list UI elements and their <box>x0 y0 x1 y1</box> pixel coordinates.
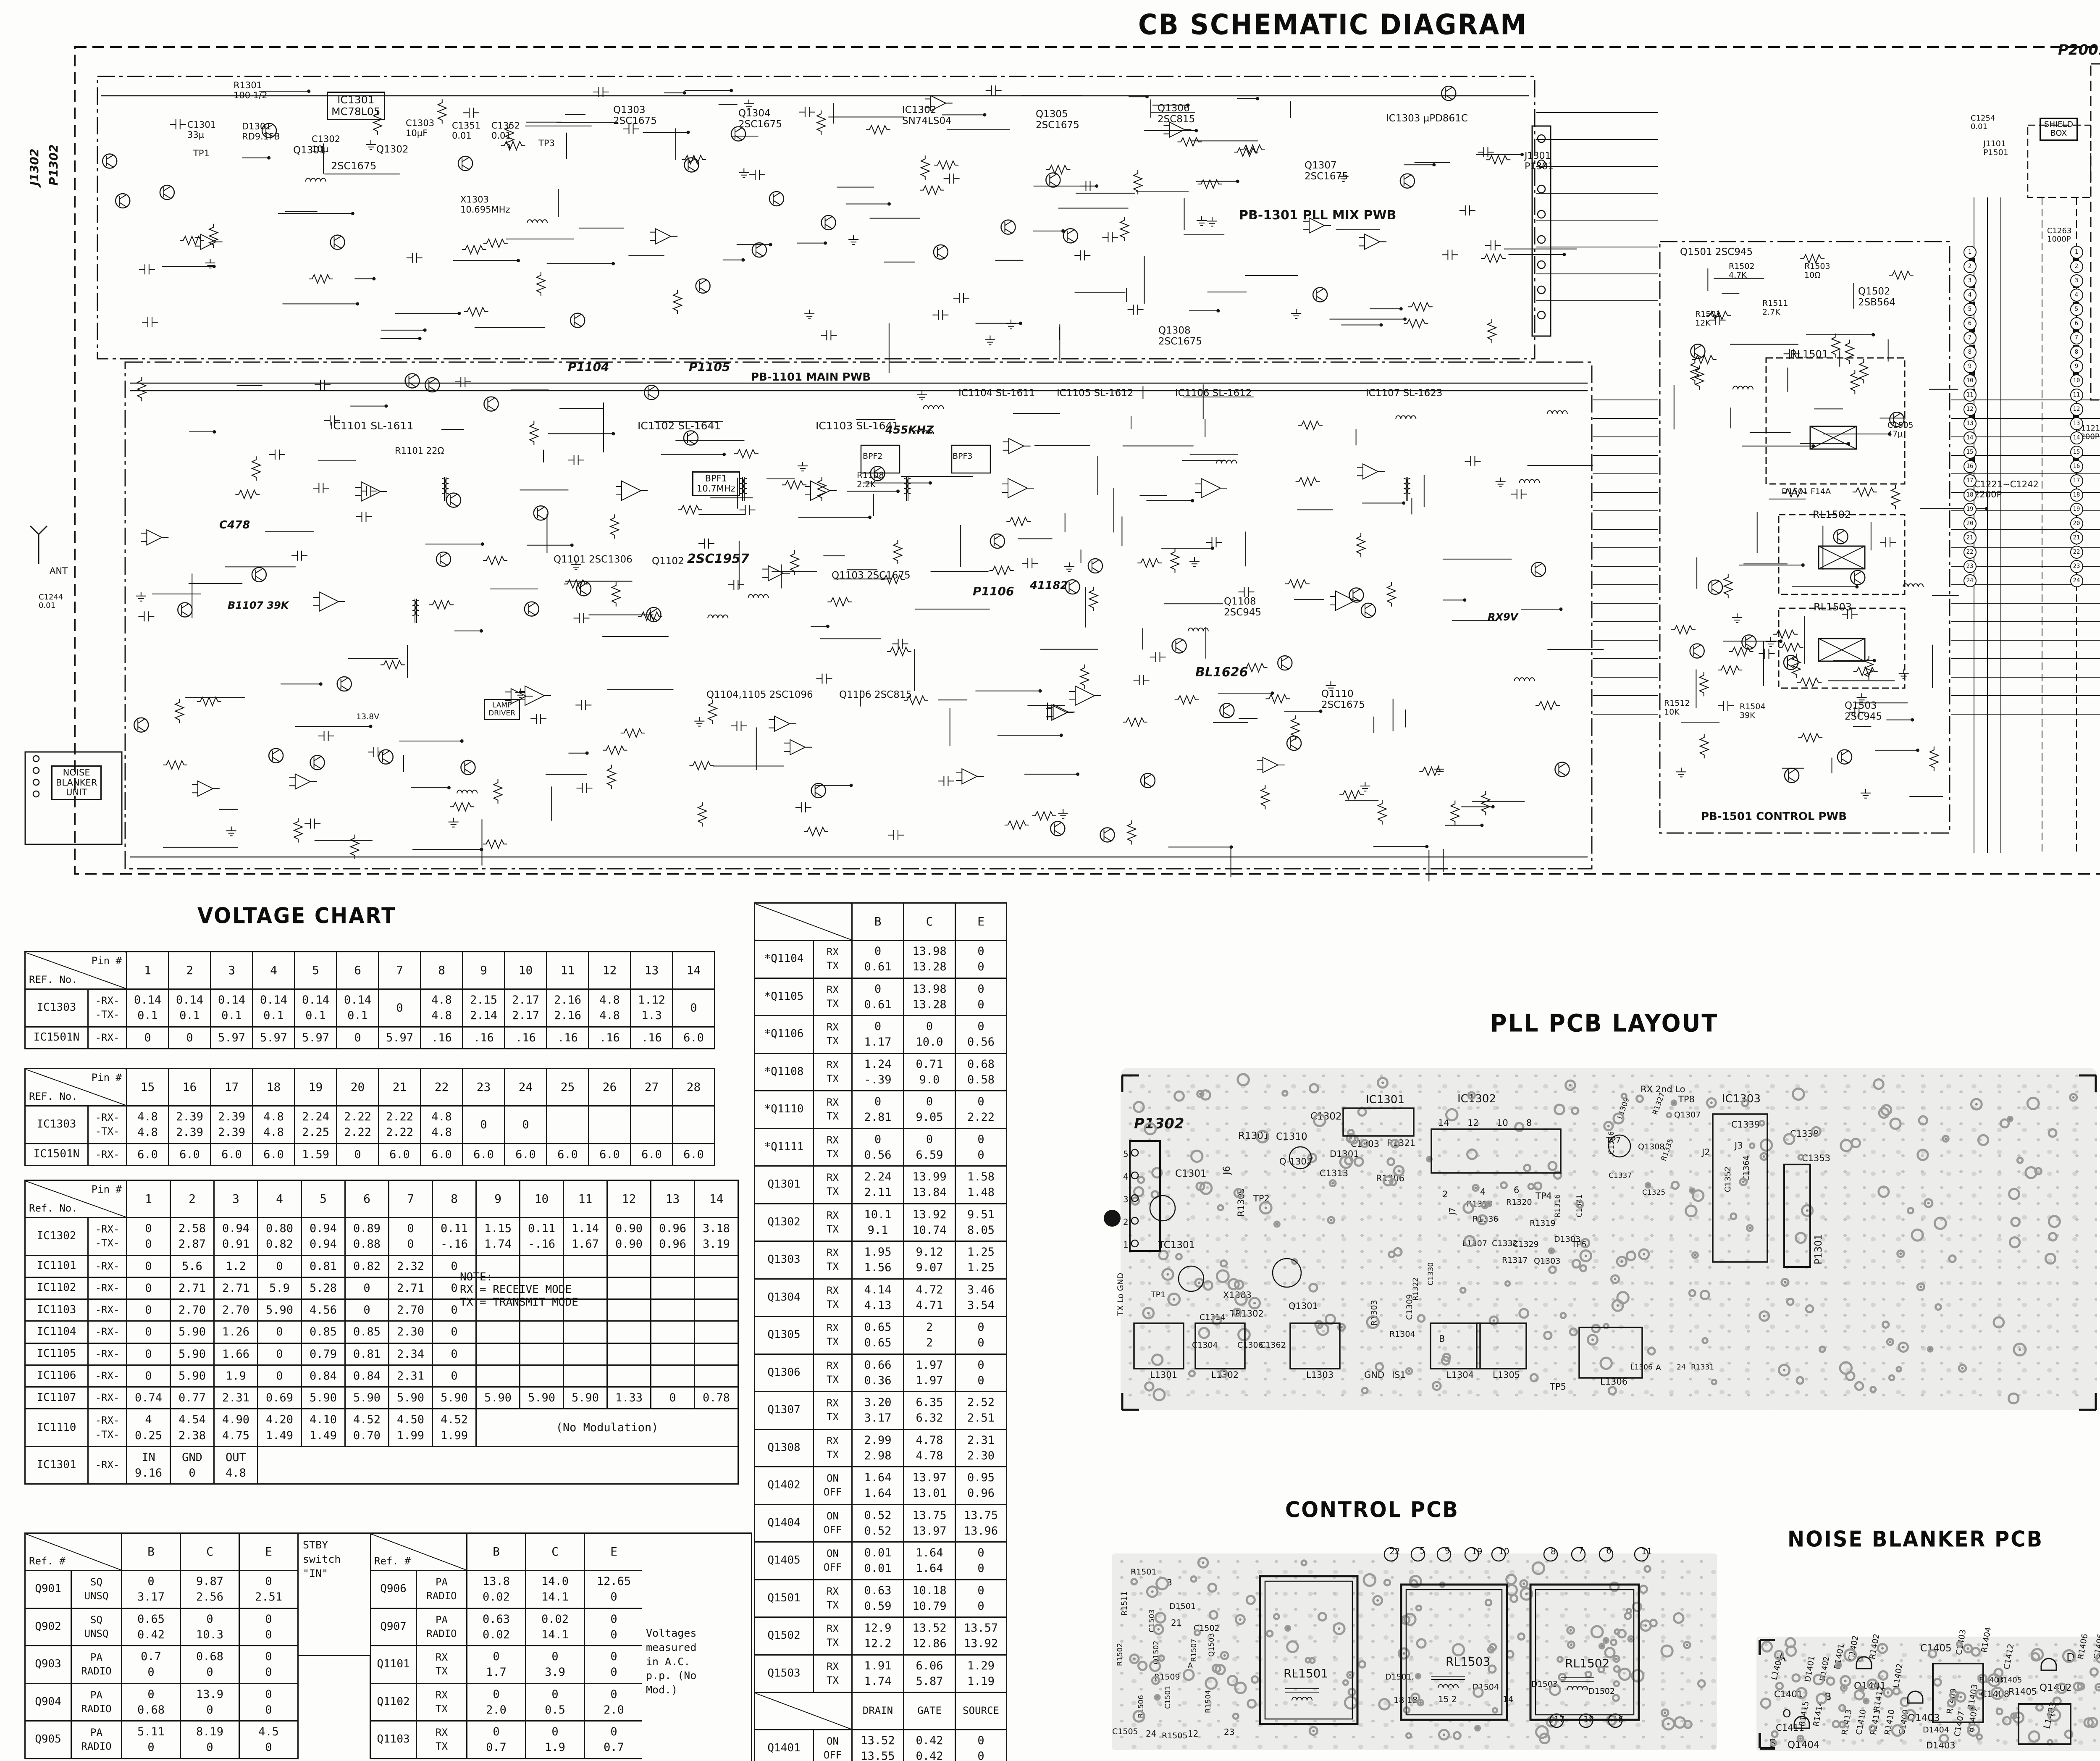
table-cell <box>695 1255 738 1277</box>
table-cell: 0.14 0.1 <box>337 989 379 1027</box>
table-cell <box>589 1106 631 1144</box>
shield-right-pins: 3 <box>2070 274 2083 287</box>
table-cell: 12.65 0 <box>585 1571 643 1609</box>
table-cell: 0 1.17 <box>852 1016 904 1054</box>
label-2: 2 <box>1442 1190 1448 1200</box>
shield-left-pins: 15 <box>1963 446 1977 459</box>
shield-right-pins: 14 <box>2070 431 2083 444</box>
table-cell: 0.77 <box>171 1387 214 1409</box>
table-cell: 13.9 0 <box>181 1683 239 1721</box>
shield-left-pins: 12 <box>1963 403 1977 416</box>
label-23: 23 <box>1224 1727 1234 1737</box>
table-cell: 5.90 <box>564 1387 607 1409</box>
label-c1301: C1301 33µ <box>187 120 216 140</box>
pll-pcb-title: PLL PCB LAYOUT <box>1490 1009 1718 1037</box>
table-cell: 2.30 <box>389 1321 433 1343</box>
table-cell: 9.12 9.07 <box>904 1241 955 1279</box>
table-cell: PA RADIO <box>417 1571 467 1609</box>
table-cell: IC1303 <box>25 989 88 1027</box>
shield-left-pins: 3 <box>1963 274 1977 287</box>
label-r1318: R1318 <box>1467 1200 1493 1209</box>
label-ic1101: IC1101 SL-1611 <box>330 420 413 432</box>
stby-switch-note: STBY switch "IN" <box>297 1532 371 1656</box>
table-cell: C <box>904 903 955 941</box>
label-d1503: D1503 <box>1531 1680 1558 1689</box>
table-cell: 5.97 <box>295 1027 337 1049</box>
table-cell: 0 0.7 <box>467 1721 526 1759</box>
table-cell: GND 0 <box>171 1446 214 1484</box>
label-12: 12 <box>1467 1118 1479 1128</box>
table-cell: 7 <box>379 952 421 989</box>
table-cell: 0 <box>127 1277 171 1299</box>
label-q1403: Q1403 <box>1908 1713 1940 1724</box>
label-12: 12 <box>1188 1729 1198 1738</box>
label-r1316: R1316 <box>1554 1194 1562 1217</box>
table-cell <box>607 1343 651 1365</box>
label-q1303: Q1303 2SC1675 <box>613 105 657 127</box>
table-cell: RX TX <box>814 1016 852 1054</box>
table-cell <box>564 1343 607 1365</box>
table-cell: Q903 <box>25 1646 71 1684</box>
table-cell: 14 <box>673 952 715 989</box>
label-x1303: X1303 10.695MHz <box>460 195 510 215</box>
table-cell: 20 <box>337 1069 379 1106</box>
table-cell: 0 <box>258 1255 302 1277</box>
label-c1351: C1351 0.01 <box>452 121 480 141</box>
table-cell: 0 0 <box>239 1646 298 1684</box>
table-cell: 0.94 0.94 <box>302 1218 345 1256</box>
table-cell: 0 <box>673 989 715 1027</box>
table-cell: RX TX <box>814 941 852 978</box>
label-pb-1501: PB-1501 CONTROL PWB <box>1701 811 1847 823</box>
label-c1341: C1341 <box>1576 1194 1584 1217</box>
table-cell: ON OFF <box>814 1467 852 1505</box>
table-cell: 13.52 12.86 <box>904 1617 955 1655</box>
shield-left-pins: 10 <box>1963 374 1977 387</box>
label-j2: J2 <box>1702 1148 1710 1158</box>
table-cell: 4.5 0 <box>239 1721 298 1759</box>
table-cell: 0 9.05 <box>904 1091 955 1129</box>
label-d1301: D1301 <box>1330 1149 1359 1159</box>
shield-left-pins: 24 <box>1963 574 1977 587</box>
label-l1307: L1307 <box>1462 1239 1487 1248</box>
table-cell: 0.84 <box>302 1365 345 1387</box>
shield-left-pins: 17 <box>1963 474 1977 487</box>
table-cell: 13.97 13.01 <box>904 1467 955 1505</box>
label-22: 22 <box>1389 1547 1400 1556</box>
table-cell: 5.90 <box>345 1387 389 1409</box>
label-rl1501: RL1501 <box>1284 1667 1328 1680</box>
table-cell: 0.79 <box>302 1343 345 1365</box>
table-cell: 2.52 2.51 <box>955 1392 1007 1430</box>
table-cell: RX TX <box>814 1279 852 1317</box>
label-d1504: D1504 <box>1473 1683 1499 1692</box>
table-cell: 0 <box>345 1299 389 1321</box>
label-p1106: P1106 <box>973 585 1014 598</box>
table-cell: Q1102 <box>370 1683 417 1721</box>
table-cell: 4.14 4.13 <box>852 1279 904 1317</box>
label-q1303: Q1303 <box>1534 1257 1560 1266</box>
label-r1320: R1320 <box>1506 1198 1532 1207</box>
table-cell: IN 9.16 <box>127 1446 171 1484</box>
table-cell: 0.85 <box>345 1321 389 1343</box>
table-cell: Pin #REF. No. <box>25 952 127 989</box>
label-rx9v: RX9V <box>1488 612 1518 623</box>
table-cell: 2.32 <box>389 1255 433 1277</box>
table-cell: 2 2 <box>904 1317 955 1354</box>
table-cell <box>520 1343 564 1365</box>
table-cell: 2.39 2.39 <box>169 1106 211 1144</box>
label-ic1301: IC1301 <box>1366 1094 1404 1106</box>
label-14: 14 <box>1438 1118 1449 1128</box>
table-cell: 2.24 2.25 <box>295 1106 337 1144</box>
table-cell <box>564 1321 607 1343</box>
table-cell: 5.11 0 <box>122 1721 181 1759</box>
label-c1306: C1306 <box>1237 1341 1263 1350</box>
voltage-table-q-bce: BCE*Q1104RX TX0 0.6113.98 13.280 0*Q1105… <box>754 902 1007 1761</box>
label-q1503: Q1503 2SC945 <box>1845 701 1882 723</box>
table-cell: 4.8 4.8 <box>253 1106 295 1144</box>
label-rl1501: RL1501 <box>1790 349 1828 360</box>
shield-right-pins: 16 <box>2070 460 2083 473</box>
label-c1338: C1338 <box>1790 1129 1819 1139</box>
table-cell: Q1101 <box>370 1646 417 1684</box>
table-cell: RX TX <box>814 1580 852 1617</box>
label-l1305: L1305 <box>1493 1370 1520 1380</box>
label-p1302: P1302 <box>47 145 60 186</box>
label-p1104: P1104 <box>568 360 609 373</box>
label-p1302: P1302 <box>1134 1116 1184 1132</box>
table-cell: 6.0 <box>211 1143 253 1165</box>
table-cell: 0 <box>127 1027 169 1049</box>
label-q1301: Q1301 <box>1289 1301 1318 1312</box>
label-3: 3 <box>1167 1578 1172 1587</box>
shield-left-pins: 7 <box>1963 331 1977 344</box>
table-cell: 0 <box>433 1365 476 1387</box>
label-l1301: L1301 <box>1150 1370 1177 1380</box>
table-cell: 2.31 2.30 <box>955 1429 1007 1467</box>
table-cell: IC1107 <box>25 1387 88 1409</box>
table-cell: 0 0 <box>127 1218 171 1256</box>
label-l1302: L1302 <box>1211 1370 1239 1380</box>
label-tp1: TP1 <box>193 149 210 159</box>
table-cell: 1.14 1.67 <box>564 1218 607 1256</box>
label-c1362: C1362 <box>1260 1341 1286 1350</box>
table-cell: 4 <box>253 952 295 989</box>
table-cell: 0.11 -.16 <box>520 1218 564 1256</box>
table-cell: 0 0.5 <box>526 1683 585 1721</box>
table-cell: IC1102 <box>25 1277 88 1299</box>
table-cell: IC1101 <box>25 1255 88 1277</box>
table-cell: 6.0 <box>673 1027 715 1049</box>
table-cell: -RX- -TX- <box>88 1106 127 1144</box>
table-cell: 0 <box>433 1343 476 1365</box>
table-cell: 0.14 0.1 <box>127 989 169 1027</box>
table-cell: 0 <box>258 1365 302 1387</box>
table-cell: -RX- <box>88 1143 127 1165</box>
table-cell: 4.54 2.38 <box>171 1409 214 1447</box>
table-cell: RX TX <box>814 1128 852 1166</box>
shield-right-pins: 1 <box>2070 246 2083 259</box>
table-cell: 15 <box>127 1069 169 1106</box>
table-cell: 9 <box>476 1180 520 1218</box>
table-cell: 4 <box>258 1180 302 1218</box>
label-q1307: Q1307 2SC1675 <box>1305 160 1348 182</box>
label-r1303: R1303 <box>1370 1300 1379 1326</box>
label-ic1301: IC1301 MC78L05 <box>327 92 385 120</box>
table-cell: DRAIN <box>852 1693 904 1730</box>
shield-right-pins: 4 <box>2070 289 2083 302</box>
shield-right-pins: 17 <box>2070 474 2083 487</box>
table-cell: 0 0 <box>389 1218 433 1256</box>
label-q1302: Q1302 <box>376 145 409 155</box>
table-cell: -RX- <box>88 1277 127 1299</box>
table-cell <box>476 1343 520 1365</box>
label-q1502: Q1502 2SB564 <box>1858 286 1895 308</box>
table-cell: 2 <box>169 952 211 989</box>
table-cell: Q902 <box>25 1608 71 1646</box>
label-24: 24 <box>1146 1729 1156 1738</box>
table-cell: Q1402 <box>755 1467 814 1505</box>
table-cell: 0 0 <box>239 1683 298 1721</box>
label-r1511: R1511 <box>1121 1591 1129 1616</box>
label-l1306: L1306 <box>1630 1364 1653 1372</box>
table-cell: C <box>181 1533 239 1571</box>
table-cell: 5.90 <box>171 1365 214 1387</box>
table-cell: 0 <box>127 1255 171 1277</box>
label-b: B <box>1439 1334 1445 1344</box>
table-cell: 0.02 14.1 <box>526 1608 585 1646</box>
label-a: A <box>1656 1364 1661 1372</box>
shield-right-pins: 23 <box>2070 560 2083 573</box>
table-cell: 12.9 12.2 <box>852 1617 904 1655</box>
label-6: 6 <box>1514 1185 1519 1196</box>
table-cell: RX TX <box>417 1683 467 1721</box>
label-d1501,: D1501, <box>1385 1673 1414 1682</box>
label-j1301: J1301 P1301 <box>1525 151 1554 172</box>
label-r1501: R1501 12K <box>1695 310 1721 328</box>
label-q1501: Q1501 2SC945 <box>1680 247 1753 258</box>
table-cell: 13.99 13.84 <box>904 1166 955 1204</box>
label-10: 10 <box>1499 1547 1509 1556</box>
table-cell: -RX- <box>88 1343 127 1365</box>
label-ic1105: IC1105 SL-1612 <box>1057 388 1134 399</box>
table-cell: 5.28 <box>302 1277 345 1299</box>
table-cell: 6.0 <box>547 1143 589 1165</box>
shield-left-pins: 8 <box>1963 346 1977 359</box>
table-cell: *Q1111 <box>755 1128 814 1166</box>
table-cell: 13.98 13.28 <box>904 978 955 1016</box>
shield-right-pins: 13 <box>2070 417 2083 430</box>
label-q1307: Q1307 <box>1674 1111 1701 1120</box>
shield-right-pins: 9 <box>2070 360 2083 373</box>
shield-right-pins: 8 <box>2070 346 2083 359</box>
table-cell: 13.57 13.92 <box>955 1617 1007 1655</box>
table-cell: 8 <box>433 1180 476 1218</box>
table-cell: 5.90 <box>389 1387 433 1409</box>
table-cell: Q1501 <box>755 1580 814 1617</box>
table-cell: 13.75 13.97 <box>904 1504 955 1542</box>
table-cell: Q1305 <box>755 1317 814 1354</box>
table-cell: 17 <box>211 1069 253 1106</box>
label-ant: ANT <box>50 566 68 576</box>
table-cell: PA RADIO <box>71 1721 122 1759</box>
table-cell: 0 0 <box>955 941 1007 978</box>
label-c1221~c1242: C1221~C1242 2200P <box>1974 480 2039 499</box>
table-cell: 0 2.0 <box>467 1683 526 1721</box>
label-tp8: TP8 <box>1678 1095 1695 1105</box>
table-cell: 0.84 <box>345 1365 389 1387</box>
label-r1321: R1321 <box>1387 1138 1415 1149</box>
table-cell: .16 <box>421 1027 463 1049</box>
label-q-1302: Q-1302 <box>1279 1157 1312 1167</box>
table-cell: 0 0 <box>585 1646 643 1684</box>
table-cell: .16 <box>631 1027 673 1049</box>
shield-right-pins: 18 <box>2070 489 2083 502</box>
label-tx: TX Lo GND <box>1116 1273 1125 1316</box>
shield-left-pins: 2 <box>1963 260 1977 273</box>
voltage-table-ic-main: Pin #Ref. No.1234567891011121314IC1302-R… <box>24 1180 739 1485</box>
label-d1501: D1501 <box>1169 1602 1196 1611</box>
table-cell: 4.52 1.99 <box>433 1409 476 1447</box>
label-r1336: R1336 <box>1473 1215 1499 1224</box>
table-cell: 9 <box>463 952 505 989</box>
table-cell: -RX- <box>88 1446 127 1484</box>
table-cell: 0 0.61 <box>852 941 904 978</box>
table-cell: 4.90 4.75 <box>214 1409 258 1447</box>
table-cell: 2.71 <box>214 1277 258 1299</box>
table-cell: 0 2.22 <box>955 1091 1007 1129</box>
label-tp1: TP1 <box>1151 1291 1165 1299</box>
table-cell: RX TX <box>814 1091 852 1129</box>
table-cell: 0.81 <box>302 1255 345 1277</box>
shield-right-pins: 22 <box>2070 546 2083 559</box>
table-cell: 0 0.56 <box>852 1128 904 1166</box>
voltage-table-pins-1-14: Pin #REF. No.1234567891011121314IC1303-R… <box>24 951 715 1049</box>
table-cell: 1.59 <box>295 1143 337 1165</box>
table-cell <box>755 1693 852 1730</box>
table-cell: 4.50 1.99 <box>389 1409 433 1447</box>
table-cell <box>520 1321 564 1343</box>
table-cell: Q1503 <box>755 1655 814 1693</box>
label-c1303: C1303 <box>1351 1139 1379 1149</box>
table-cell: 2.22 2.22 <box>337 1106 379 1144</box>
table-cell: -RX- <box>88 1365 127 1387</box>
table-cell: 6.0 <box>379 1143 421 1165</box>
table-cell: 2.22 2.22 <box>379 1106 421 1144</box>
table-cell: 0.66 0.36 <box>852 1354 904 1392</box>
label-2sc1675: 2SC1675 <box>331 160 376 172</box>
label-ic1303: IC1303 <box>1722 1093 1761 1105</box>
table-cell: 0.81 <box>345 1343 389 1365</box>
label-c1339: C1339 <box>1731 1120 1760 1130</box>
table-cell: 3 <box>214 1180 258 1218</box>
label-c1301: C1301 <box>1175 1169 1207 1180</box>
table-cell <box>651 1277 695 1299</box>
label-noise: NOISE BLANKER UNIT <box>51 765 102 800</box>
shield-left-pins: 6 <box>1963 317 1977 330</box>
table-cell <box>695 1321 738 1343</box>
label-tp2: TP2 <box>1253 1194 1270 1204</box>
label-r1504: R1504 <box>1205 1690 1213 1713</box>
label-q1108: Q1108 2SC945 <box>1224 597 1261 618</box>
table-cell: 5.6 <box>171 1255 214 1277</box>
shield-right-pins: 11 <box>2070 389 2083 402</box>
table-cell: 1.95 1.56 <box>852 1241 904 1279</box>
table-cell: 4.78 4.78 <box>904 1429 955 1467</box>
table-cell: 6.0 <box>463 1143 505 1165</box>
table-cell: 10 <box>520 1180 564 1218</box>
shield-left-pins: 1 <box>1963 246 1977 259</box>
label-r1502: R1502 <box>1116 1643 1124 1666</box>
label-d1501: D1501 F14A <box>1782 487 1831 496</box>
label-c1405: C1405 <box>1920 1643 1952 1654</box>
label-8: 8 <box>1551 1547 1556 1556</box>
table-cell: 0.82 <box>345 1255 389 1277</box>
table-cell: 13.52 13.55 <box>852 1730 904 1761</box>
label-is1: IS1 <box>1392 1370 1406 1380</box>
table-cell: GATE <box>904 1693 955 1730</box>
table-cell: RX TX <box>814 1317 852 1354</box>
label-tp6: TP6 <box>1572 1240 1586 1249</box>
table-cell: 0.52 0.52 <box>852 1504 904 1542</box>
table-cell: 1.64 1.64 <box>852 1467 904 1505</box>
label-6: 6 <box>1606 1546 1612 1555</box>
table-cell <box>258 1446 738 1484</box>
shield-left-pins: 14 <box>1963 431 1977 444</box>
table-cell: 6.35 6.32 <box>904 1392 955 1430</box>
label-rl1503: RL1503 <box>1814 602 1852 613</box>
table-cell: RX TX <box>814 1392 852 1430</box>
label-4: 4 <box>1480 1187 1486 1197</box>
label-q1308: Q1308 2SC1675 <box>1158 326 1202 347</box>
table-cell: 1.33 <box>607 1387 651 1409</box>
label-d1502: D1502 <box>1588 1687 1615 1696</box>
label-c1313: C1313 <box>1320 1169 1348 1179</box>
label-r1108: R1108 2.2K <box>857 470 884 489</box>
table-cell: 2 <box>171 1180 214 1218</box>
table-cell: RX TX <box>814 1166 852 1204</box>
table-cell: 2.16 2.16 <box>547 989 589 1027</box>
label-lamp: LAMP DRIVER <box>484 699 520 720</box>
table-cell: 6.0 <box>673 1143 715 1165</box>
shield-left-pins: 11 <box>1963 389 1977 402</box>
table-cell: 12 <box>607 1180 651 1218</box>
label-r1503: R1503 10Ω <box>1804 262 1830 280</box>
label-r1405: R1405 <box>1998 1676 2022 1685</box>
label-d: D <box>2066 1652 2075 1664</box>
table-cell: C <box>526 1533 585 1571</box>
label-j3: J3 <box>1735 1141 1743 1151</box>
table-cell: 7 <box>389 1180 433 1218</box>
label-r1317: R1317 <box>1502 1256 1528 1265</box>
table-cell: 3.18 3.19 <box>695 1218 738 1256</box>
table-cell: ON OFF <box>814 1504 852 1542</box>
voltage-table-q900: Ref. #BCEQ901SQ UNSQ0 3.179.87 2.560 2.5… <box>24 1532 299 1759</box>
label-c1346: C1346 <box>1608 1131 1616 1154</box>
table-cell: 2.31 <box>389 1365 433 1387</box>
table-cell: Q1302 <box>755 1204 814 1241</box>
table-cell: 6.0 <box>169 1143 211 1165</box>
label-a: A <box>1188 1662 1193 1670</box>
label-pb-1101: PB-1101 MAIN PWB <box>751 371 871 384</box>
table-cell: RX TX <box>814 1429 852 1467</box>
label-c478: C478 <box>219 519 250 531</box>
table-cell: Q904 <box>25 1683 71 1721</box>
table-cell: 0.85 <box>302 1321 345 1343</box>
table-cell <box>631 1106 673 1144</box>
table-cell: 13.8 0.02 <box>467 1571 526 1609</box>
